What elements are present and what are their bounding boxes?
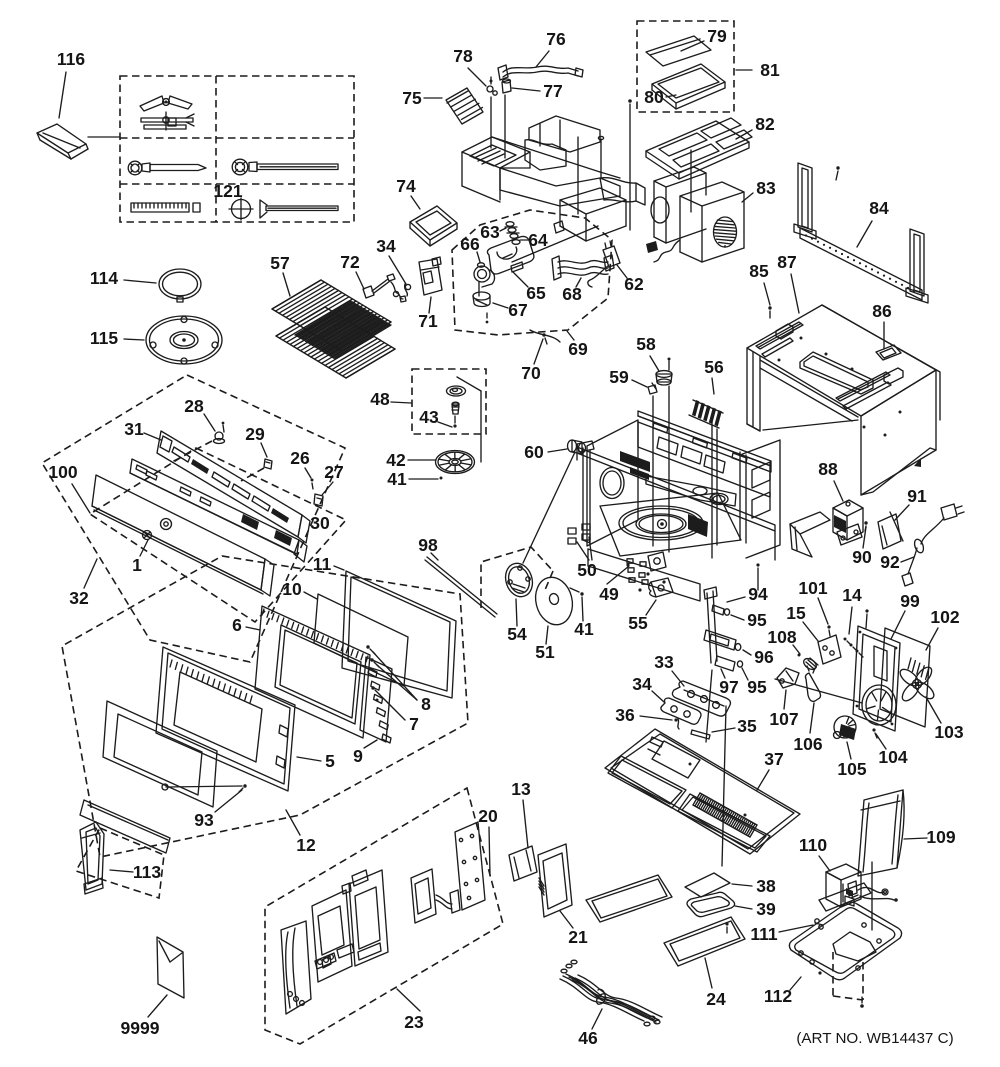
svg-text:55: 55 [628,613,648,633]
svg-text:10: 10 [282,579,302,599]
svg-text:12: 12 [296,835,316,855]
svg-text:15: 15 [786,603,806,623]
svg-text:104: 104 [878,747,907,767]
svg-text:27: 27 [324,462,343,482]
svg-text:78: 78 [453,46,473,66]
svg-text:71: 71 [418,311,438,331]
svg-text:100: 100 [48,462,77,482]
svg-text:121: 121 [213,181,242,201]
svg-text:36: 36 [615,705,635,725]
svg-text:76: 76 [546,29,566,49]
svg-text:63: 63 [480,222,500,242]
svg-text:111: 111 [750,924,778,944]
svg-text:26: 26 [290,448,310,468]
svg-text:5: 5 [325,751,335,771]
svg-text:54: 54 [507,624,527,644]
svg-text:83: 83 [756,178,776,198]
svg-text:114: 114 [90,268,118,288]
svg-text:84: 84 [869,198,889,218]
svg-text:99: 99 [900,591,920,611]
svg-text:90: 90 [852,547,872,567]
svg-text:102: 102 [930,607,959,627]
svg-text:107: 107 [769,709,798,729]
svg-text:46: 46 [578,1028,598,1048]
svg-text:9: 9 [353,746,363,766]
svg-text:82: 82 [755,114,775,134]
svg-text:42: 42 [386,450,406,470]
svg-text:9999: 9999 [121,1018,160,1038]
svg-text:7: 7 [409,714,419,734]
svg-text:13: 13 [511,779,531,799]
svg-text:58: 58 [636,334,656,354]
svg-text:96: 96 [754,647,774,667]
svg-text:41: 41 [574,619,594,639]
svg-text:29: 29 [245,424,265,444]
svg-text:115: 115 [90,328,118,348]
svg-text:11: 11 [313,554,332,574]
svg-text:35: 35 [737,716,757,736]
svg-text:105: 105 [837,759,866,779]
svg-text:70: 70 [521,363,541,383]
svg-text:85: 85 [749,261,769,281]
svg-text:65: 65 [526,283,546,303]
svg-text:14: 14 [842,585,862,605]
svg-text:39: 39 [756,899,776,919]
svg-text:56: 56 [704,357,724,377]
svg-text:43: 43 [419,407,439,427]
svg-text:79: 79 [707,26,727,46]
svg-text:48: 48 [370,389,390,409]
svg-text:93: 93 [194,810,214,830]
svg-text:37: 37 [764,749,783,769]
svg-text:116: 116 [57,49,85,69]
svg-text:108: 108 [767,627,796,647]
svg-text:31: 31 [124,419,144,439]
svg-text:95: 95 [747,610,767,630]
svg-text:95: 95 [747,677,767,697]
svg-text:33: 33 [654,652,674,672]
svg-text:32: 32 [69,588,89,608]
svg-text:8: 8 [421,694,431,714]
svg-text:(ART NO. WB14437 C): (ART NO. WB14437 C) [796,1030,953,1047]
svg-text:91: 91 [907,486,927,506]
svg-text:92: 92 [880,552,900,572]
svg-text:101: 101 [798,578,827,598]
svg-text:24: 24 [706,989,726,1009]
svg-text:67: 67 [508,300,527,320]
svg-text:74: 74 [396,176,416,196]
svg-text:50: 50 [577,560,597,580]
svg-text:66: 66 [460,234,480,254]
svg-text:106: 106 [793,734,822,754]
svg-text:98: 98 [418,535,438,555]
svg-text:34: 34 [632,674,652,694]
svg-text:6: 6 [232,615,242,635]
svg-text:21: 21 [568,927,588,947]
svg-text:60: 60 [524,442,544,462]
svg-text:59: 59 [609,367,629,387]
svg-text:88: 88 [818,459,838,479]
svg-text:1: 1 [132,555,142,575]
svg-text:49: 49 [599,584,619,604]
svg-text:113: 113 [133,862,161,882]
svg-text:57: 57 [270,253,289,273]
svg-text:110: 110 [799,835,827,855]
svg-text:28: 28 [184,396,204,416]
svg-text:69: 69 [568,339,588,359]
svg-text:23: 23 [404,1012,424,1032]
svg-text:109: 109 [926,827,955,847]
svg-text:68: 68 [562,284,582,304]
svg-text:97: 97 [719,677,738,697]
svg-text:86: 86 [872,301,892,321]
svg-text:112: 112 [764,986,792,1006]
svg-text:87: 87 [777,252,796,272]
svg-text:81: 81 [760,60,780,80]
svg-text:38: 38 [756,876,776,896]
svg-text:75: 75 [402,88,422,108]
svg-text:72: 72 [340,252,360,272]
svg-text:20: 20 [478,806,498,826]
svg-text:77: 77 [543,81,562,101]
svg-text:51: 51 [535,642,555,662]
svg-text:103: 103 [934,722,963,742]
svg-text:30: 30 [310,513,330,533]
svg-text:34: 34 [376,236,396,256]
svg-text:41: 41 [387,469,407,489]
